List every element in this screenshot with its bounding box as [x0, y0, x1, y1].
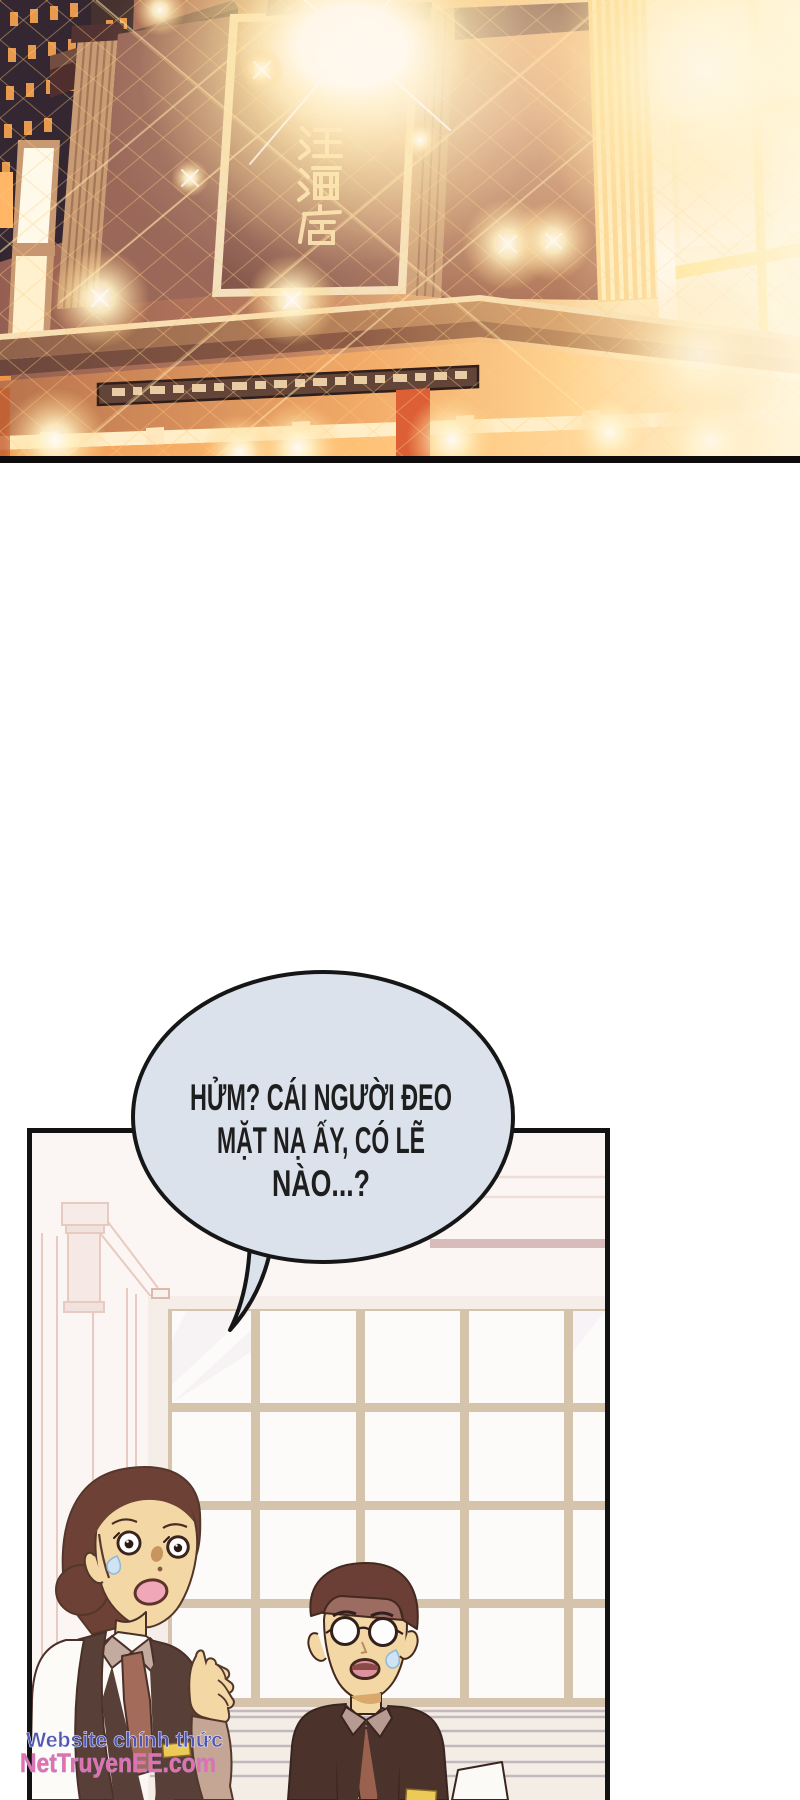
svg-text:HỬM? CÁI NGƯỜI ĐEO: HỬM? CÁI NGƯỜI ĐEO: [190, 1076, 452, 1118]
svg-text:NetTruyenEE.com: NetTruyenEE.com: [20, 1748, 216, 1778]
svg-text:NÀO...?: NÀO...?: [272, 1163, 370, 1204]
svg-text:MẶT NẠ ẤY, CÓ LẼ: MẶT NẠ ẤY, CÓ LẼ: [217, 1119, 425, 1161]
